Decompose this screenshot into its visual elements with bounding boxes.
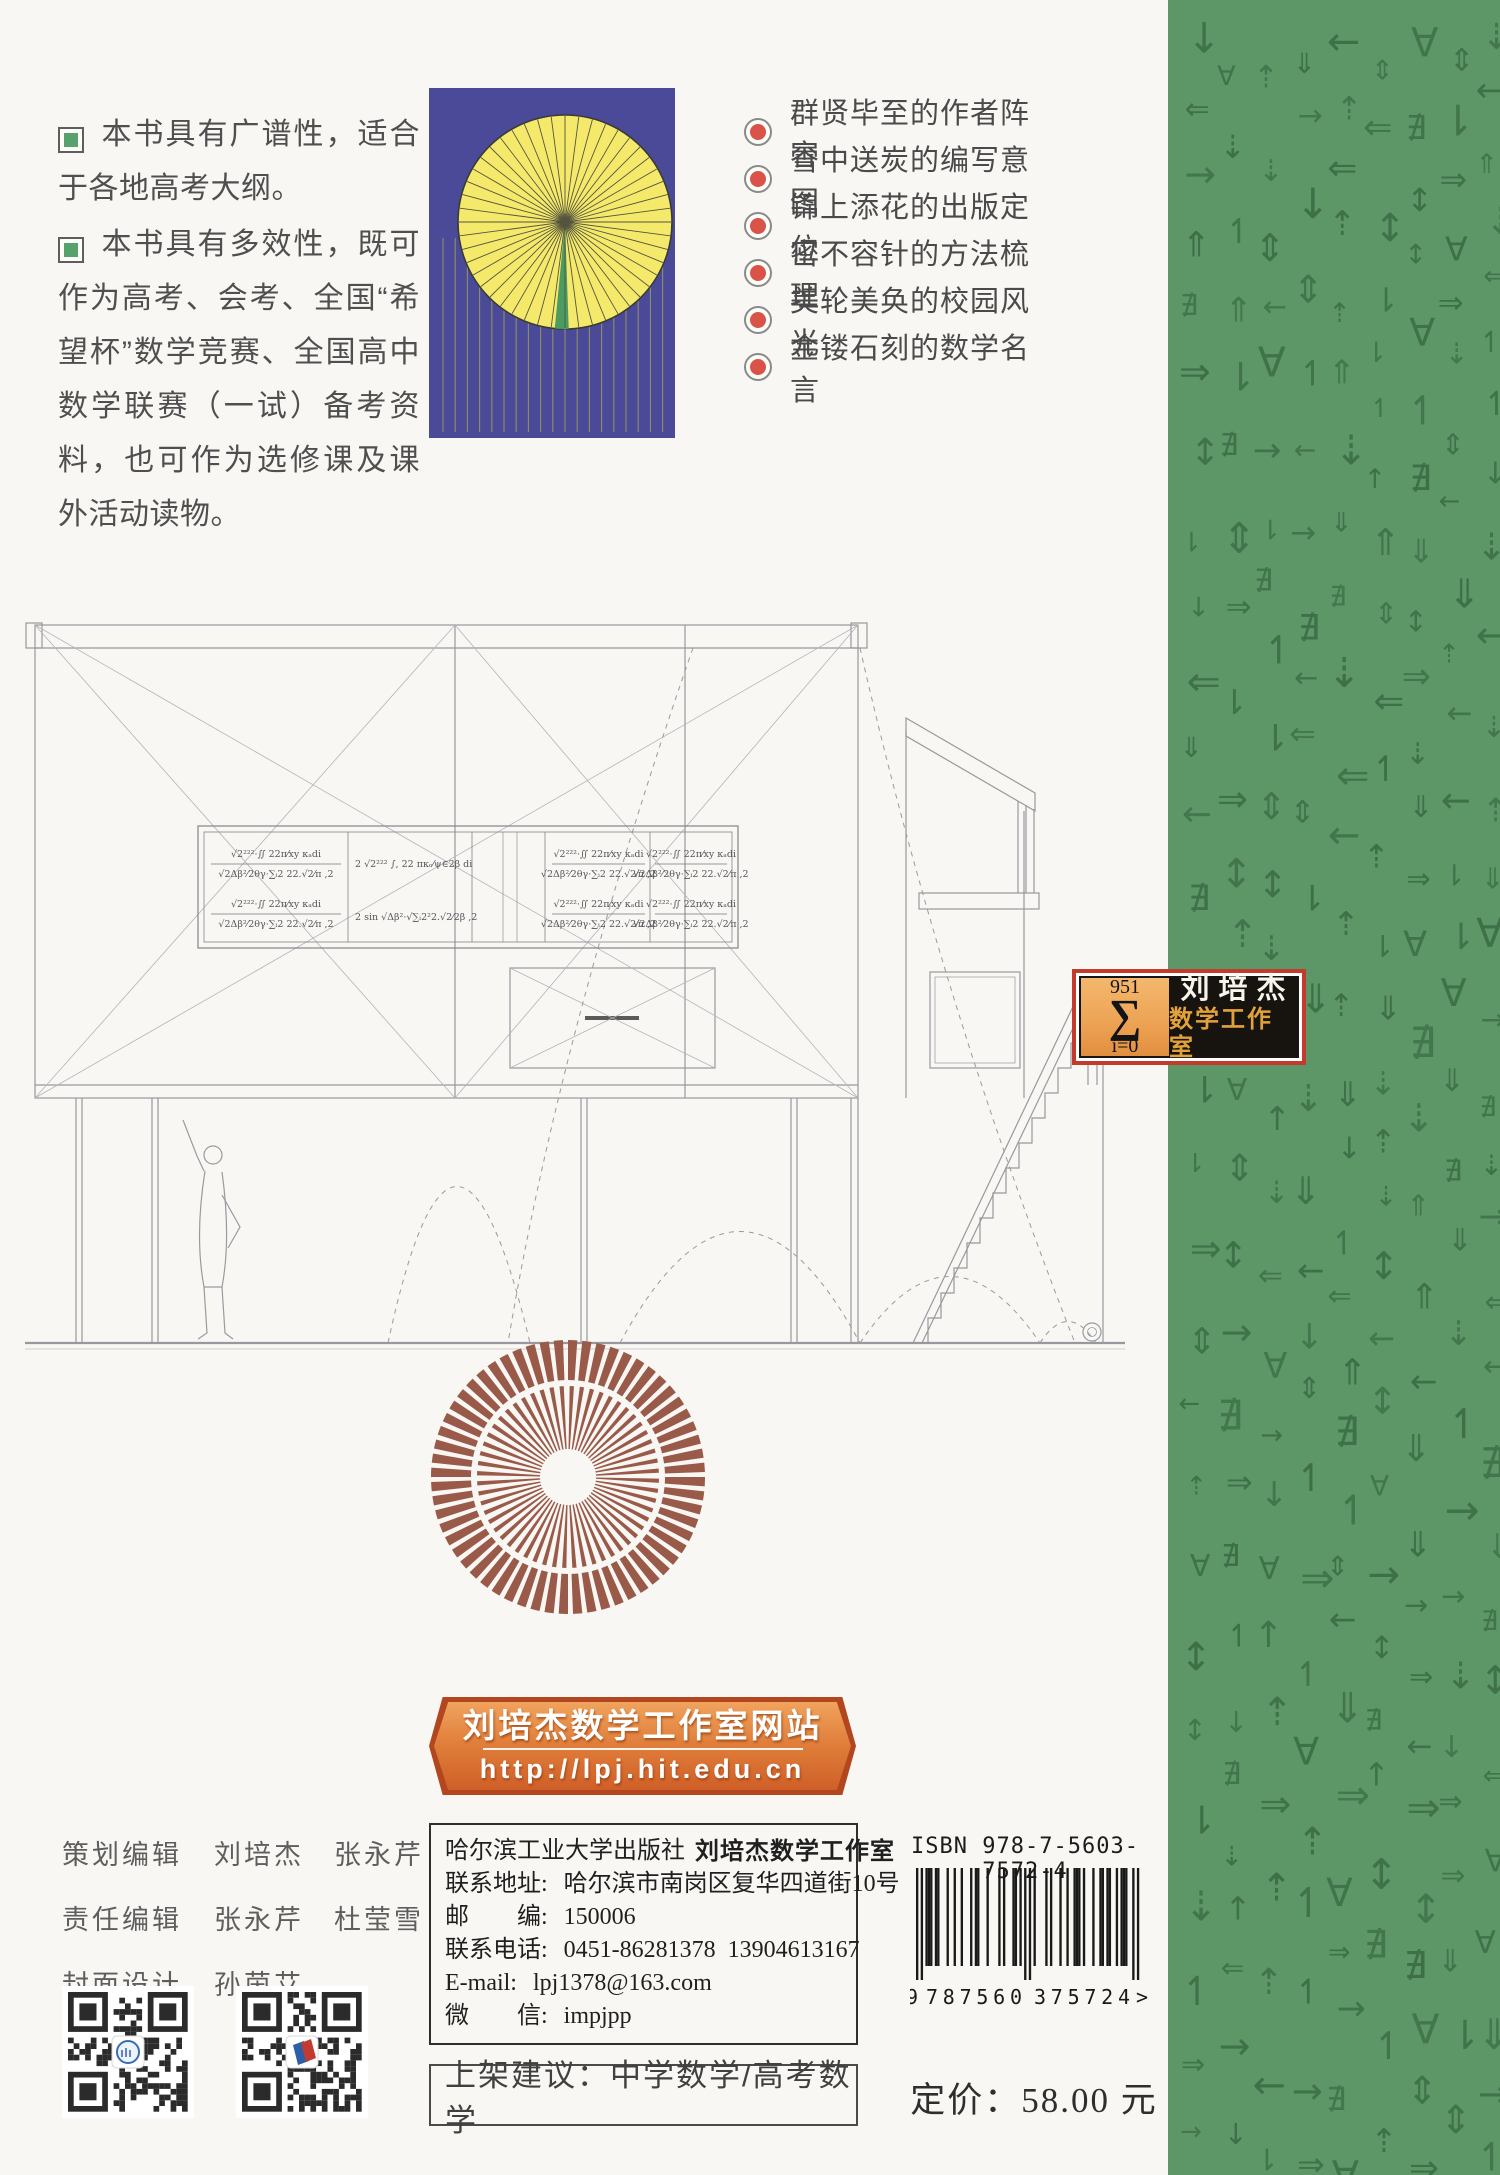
svg-text:↿: ↿ xyxy=(1295,1456,1327,1500)
svg-text:⇒: ⇒ xyxy=(1226,589,1252,625)
svg-text:⇂: ⇂ xyxy=(1186,1798,1218,1842)
svg-text:⇕: ⇕ xyxy=(1449,42,1475,78)
svg-text:→: → xyxy=(1478,2073,1500,2116)
contact-value: lpj1378@163.com xyxy=(533,1967,712,2000)
svg-text:⇓: ⇓ xyxy=(1374,988,1402,1027)
svg-text:∄: ∄ xyxy=(1409,459,1431,499)
svg-text:√2²²²·∬ 22π⁄xy κₐdi: √2²²²·∬ 22π⁄xy κₐdi xyxy=(646,849,736,860)
sigma-logo-icon: 951 ∑ i=0 xyxy=(1081,978,1169,1056)
svg-text:⇂: ⇂ xyxy=(1190,1071,1220,1112)
svg-text:↿: ↿ xyxy=(1446,1400,1480,1448)
contact-value: 0451-86281378 13904613167 xyxy=(564,1934,860,1967)
svg-text:⇣: ⇣ xyxy=(1184,1883,1218,1931)
svg-text:↓: ↓ xyxy=(1483,456,1500,491)
svg-text:∀: ∀ xyxy=(1485,1843,1500,1879)
svg-text:⇕: ⇕ xyxy=(1374,596,1398,630)
svg-text:↿: ↿ xyxy=(1371,750,1400,790)
svg-text:⇓: ⇓ xyxy=(1439,1063,1465,1099)
svg-text:√2Δβ²⁄2θγ·∑ᵢ2 22.√2⁄π ,2: √2Δβ²⁄2θγ·∑ᵢ2 22.√2⁄π ,2 xyxy=(633,919,748,930)
svg-text:↓: ↓ xyxy=(1187,593,1210,624)
svg-text:⇐: ⇐ xyxy=(1186,657,1220,705)
svg-text:⇣: ⇣ xyxy=(1220,1841,1243,1872)
svg-text:⇂: ⇂ xyxy=(1365,336,1388,369)
svg-text:⇣: ⇣ xyxy=(1445,1654,1476,1697)
svg-text:⇂: ⇂ xyxy=(1440,96,1475,145)
svg-text:⇑: ⇑ xyxy=(1406,1189,1430,1223)
banner-divider xyxy=(483,1748,803,1750)
contact-value: 哈尔滨市南岗区复华四道街10号 xyxy=(564,1868,900,1901)
credit-name: 刘培杰 xyxy=(214,1833,304,1872)
svg-text:√2²²²·∬ 22π⁄xy κₐdi: √2²²²·∬ 22π⁄xy κₐdi xyxy=(553,899,643,910)
svg-text:↿: ↿ xyxy=(1330,1223,1358,1262)
website-banner: 刘培杰数学工作室网站 http://lpj.hit.edu.cn xyxy=(429,1697,856,1795)
svg-text:√2²²²·∬ 22π⁄xy κₐdi: √2²²²·∬ 22π⁄xy κₐdi xyxy=(231,899,321,910)
svg-text:⇒: ⇒ xyxy=(1181,2047,1205,2081)
svg-text:↑: ↑ xyxy=(1224,1889,1251,1927)
svg-text:√2²²²·∬ 22π⁄xy κₐdi: √2²²²·∬ 22π⁄xy κₐdi xyxy=(553,849,643,860)
svg-text:↓: ↓ xyxy=(1439,1730,1464,1765)
feature-list: 群贤毕至的作者阵容雪中送炭的编写意图锦上添花的出版定位密不容针的方法梳理美轮美奂… xyxy=(744,116,1054,398)
svg-text:←: ← xyxy=(1368,1319,1395,1357)
intro-paragraph: 本书具有广谱性，适合于各地高考大纲。 xyxy=(58,108,420,216)
svg-text:∀: ∀ xyxy=(1332,2153,1360,2175)
svg-text:∄: ∄ xyxy=(1404,1944,1427,1987)
cover-artwork-fan xyxy=(429,88,675,438)
svg-text:⇣: ⇣ xyxy=(1258,154,1283,189)
svg-text:↓: ↓ xyxy=(1224,2117,1248,2151)
svg-text:⇓: ⇓ xyxy=(1476,2010,1500,2059)
contact-value: impjpp xyxy=(564,2000,632,2033)
svg-text:∀: ∀ xyxy=(1445,229,1468,268)
contact-label: 联系地址: xyxy=(445,1868,554,1901)
building-outline xyxy=(25,623,1125,1349)
svg-text:↕: ↕ xyxy=(1220,851,1254,897)
studio-subtitle: 数学工作室 xyxy=(1169,1006,1297,1062)
svg-text:⇂: ⇂ xyxy=(1260,718,1290,759)
svg-text:⇕: ⇕ xyxy=(1406,2069,1438,2113)
svg-text:∄: ∄ xyxy=(1219,428,1238,463)
svg-text:←: ← xyxy=(1252,2062,1286,2108)
book-back-cover: ↓⇐→⇑∄⇒↕⇂↓⇐⇓←∄↑⇂⇂⇒⇕←⇡∀↕↕⇂⇣↿⇒→∀⇣↿⇑⇂∄⇕⇒⇂⇒↕⇡… xyxy=(0,0,1500,2175)
svg-text:↿: ↿ xyxy=(1298,355,1327,395)
svg-text:√2Δβ²⁄2θγ·∑ᵢ2 22.√2⁄π ,2: √2Δβ²⁄2θγ·∑ᵢ2 22.√2⁄π ,2 xyxy=(218,869,333,880)
svg-text:⇓: ⇓ xyxy=(1437,1943,1463,1979)
svg-text:↓: ↓ xyxy=(1295,1318,1324,1358)
svg-text:⇐: ⇐ xyxy=(1327,1279,1351,1313)
annex-window xyxy=(930,972,1020,1068)
svg-text:↕: ↕ xyxy=(1180,1635,1213,1680)
svg-text:→: → xyxy=(1184,152,1216,196)
svg-text:⇂: ⇂ xyxy=(1224,355,1257,400)
svg-text:⇂: ⇂ xyxy=(1446,917,1476,958)
credit-row: 策划编辑刘培杰张永芹 xyxy=(62,1833,454,1872)
svg-text:←: ← xyxy=(1328,813,1361,858)
svg-text:→: → xyxy=(1292,2069,1323,2112)
svg-text:⇓: ⇓ xyxy=(1293,47,1316,80)
svg-text:⇡: ⇡ xyxy=(1328,204,1357,244)
svg-text:⇐: ⇐ xyxy=(1185,92,1210,127)
svg-text:↑: ↑ xyxy=(1364,464,1387,495)
svg-text:⇂: ⇂ xyxy=(1298,880,1327,920)
dashed-trajectories xyxy=(388,648,1096,1343)
svg-text:⇒: ⇒ xyxy=(1179,349,1211,393)
svg-text:←: ← xyxy=(1476,613,1500,656)
arrow-pattern: ↓⇐→⇑∄⇒↕⇂↓⇐⇓←∄↑⇂⇂⇒⇕←⇡∀↕↕⇂⇣↿⇒→∀⇣↿⇑⇂∄⇕⇒⇂⇒↕⇡… xyxy=(1168,0,1500,2175)
svg-text:↕: ↕ xyxy=(1404,604,1428,638)
svg-text:⇐: ⇐ xyxy=(1336,753,1370,799)
svg-text:∀: ∀ xyxy=(1476,911,1500,957)
svg-text:∀: ∀ xyxy=(1259,1551,1280,1587)
qr-code-right xyxy=(236,1986,368,2118)
publisher-info-box: 哈尔滨工业大学出版社 刘培杰数学工作室 联系地址: 哈尔滨市南岗区复华四道街10… xyxy=(429,1823,858,2045)
svg-text:⇒: ⇒ xyxy=(1217,777,1248,820)
svg-text:⇡: ⇡ xyxy=(1261,1866,1293,1910)
svg-text:⇑: ⇑ xyxy=(1475,149,1498,180)
svg-text:←: ← xyxy=(1410,1362,1438,1401)
svg-text:→: → xyxy=(1221,1310,1253,1354)
svg-text:↿: ↿ xyxy=(1225,212,1254,252)
svg-text:←: ← xyxy=(1294,660,1318,694)
svg-text:⇡: ⇡ xyxy=(1328,988,1354,1024)
svg-text:⇑: ⇑ xyxy=(1182,225,1211,265)
svg-text:∄: ∄ xyxy=(1188,879,1210,919)
svg-text:⇐: ⇐ xyxy=(1483,261,1500,292)
svg-text:∀: ∀ xyxy=(1411,2005,1439,2053)
svg-text:⇓: ⇓ xyxy=(1330,1684,1365,1733)
svg-text:→: → xyxy=(1290,515,1316,551)
svg-text:√2Δβ²⁄2θγ·∑ᵢ2 22.√2⁄π ,2: √2Δβ²⁄2θγ·∑ᵢ2 22.√2⁄π ,2 xyxy=(633,869,748,880)
credit-name: 杜莹雪 xyxy=(334,1898,424,1937)
svg-text:⇐: ⇐ xyxy=(1363,108,1392,148)
svg-text:⇡: ⇡ xyxy=(1328,298,1351,329)
svg-text:⇕: ⇕ xyxy=(1187,1321,1217,1362)
intro-text: 本书具有多效性，既可作为高考、会考、全国“希望杯”数学竞赛、全国高中数学联赛（一… xyxy=(58,228,420,531)
svg-text:⇡: ⇡ xyxy=(1253,59,1279,95)
svg-text:∄: ∄ xyxy=(1221,1539,1240,1574)
svg-text:↕: ↕ xyxy=(1257,863,1288,906)
svg-text:⇡: ⇡ xyxy=(1370,2121,1398,2160)
svg-text:⇐: ⇐ xyxy=(1221,1952,1244,1985)
svg-text:⇒: ⇒ xyxy=(1409,2148,1439,2175)
stair-steps xyxy=(928,1018,1097,1343)
svg-text:⇒: ⇒ xyxy=(1409,1660,1433,1694)
svg-text:←: ← xyxy=(1329,1599,1357,1638)
svg-text:⇡: ⇡ xyxy=(1185,1472,1207,1502)
svg-text:2 sin √Δβ²·√∑ᵢ2²2.√2⁄2β ,2: 2 sin √Δβ²·√∑ᵢ2²2.√2⁄2β ,2 xyxy=(355,912,477,923)
svg-text:←: ← xyxy=(1294,435,1317,466)
banner-url: http://lpj.hit.edu.cn xyxy=(480,1755,805,1783)
svg-text:⇡: ⇡ xyxy=(1370,1122,1397,1160)
svg-text:⇕: ⇕ xyxy=(1256,785,1287,828)
svg-text:∄: ∄ xyxy=(1444,1154,1462,1188)
svg-text:↕: ↕ xyxy=(1479,1659,1500,1704)
svg-text:↿: ↿ xyxy=(1479,325,1500,359)
svg-text:↕: ↕ xyxy=(1190,431,1221,474)
qr-code-left xyxy=(62,1986,194,2118)
svg-text:←: ← xyxy=(1438,487,1460,517)
ean13-barcode: 9787560375724> xyxy=(910,1864,1150,2014)
svg-text:√2Δβ²⁄2θγ·∑ᵢ2 22.√2⁄π ,2: √2Δβ²⁄2θγ·∑ᵢ2 22.√2⁄π ,2 xyxy=(218,919,333,930)
svg-text:⇒: ⇒ xyxy=(1438,1784,1462,1818)
svg-text:>: > xyxy=(1136,1985,1148,2009)
svg-text:↓: ↓ xyxy=(1260,1475,1289,1515)
svg-text:∀: ∀ xyxy=(1190,1549,1211,1584)
svg-text:∀: ∀ xyxy=(1293,1730,1319,1774)
publisher-name: 哈尔滨工业大学出版社 xyxy=(445,1835,685,1868)
svg-text:⇓: ⇓ xyxy=(1290,1169,1322,1213)
svg-text:↑: ↑ xyxy=(1253,1615,1283,1656)
studio-name: 刘培杰 xyxy=(1171,972,1294,1006)
svg-text:⇕: ⇕ xyxy=(1297,1371,1321,1405)
sigma-symbol: ∑ xyxy=(1109,996,1142,1036)
svg-text:→: → xyxy=(1219,2024,1251,2068)
svg-text:⇣: ⇣ xyxy=(1444,1314,1473,1354)
svg-text:⇓: ⇓ xyxy=(1486,1527,1500,1567)
publisher-contact-row: 微 信: impjpp xyxy=(445,2000,842,2033)
svg-text:⇐: ⇐ xyxy=(1289,714,1316,752)
svg-text:↿: ↿ xyxy=(1336,1486,1370,1534)
svg-text:375724: 375724 xyxy=(1034,1985,1130,2009)
credit-role: 策划编辑 xyxy=(62,1833,182,1872)
publisher-name-row: 哈尔滨工业大学出版社 刘培杰数学工作室 xyxy=(445,1835,842,1868)
svg-text:↕: ↕ xyxy=(1364,1850,1399,1899)
svg-text:⇓: ⇓ xyxy=(1408,790,1433,825)
svg-text:⇂: ⇂ xyxy=(1254,2144,1279,2175)
svg-text:←: ← xyxy=(1297,1251,1325,1290)
svg-text:↓: ↓ xyxy=(1295,179,1330,228)
svg-text:9: 9 xyxy=(910,1985,918,2009)
svg-text:⇕: ⇕ xyxy=(1292,267,1324,311)
svg-text:⇣: ⇣ xyxy=(1485,200,1500,244)
svg-text:∄: ∄ xyxy=(1217,1392,1243,1440)
shelving-text: 上架建议：中学数学/高考数学 xyxy=(445,2050,856,2140)
svg-text:←: ← xyxy=(1263,289,1287,323)
svg-text:←: ← xyxy=(1446,695,1472,731)
svg-text:⇒: ⇒ xyxy=(1440,1858,1465,1893)
svg-text:∄: ∄ xyxy=(1481,1606,1498,1637)
svg-text:⇣: ⇣ xyxy=(1482,710,1500,744)
svg-text:↕: ↕ xyxy=(1369,1630,1395,1666)
svg-text:∀: ∀ xyxy=(1258,339,1286,387)
yellow-fan-illustration xyxy=(429,88,675,438)
publisher-contact-row: 邮 编: 150006 xyxy=(445,1901,842,1934)
contact-label: 联系电话: xyxy=(445,1934,554,1967)
svg-text:↿: ↿ xyxy=(1369,394,1391,424)
green-square-bullet-icon xyxy=(58,237,84,263)
publisher-contact-row: 联系地址: 哈尔滨市南岗区复华四道街10号 xyxy=(445,1868,842,1901)
svg-text:⇣: ⇣ xyxy=(1403,1097,1436,1142)
svg-text:⇒: ⇒ xyxy=(1259,1782,1291,1826)
svg-text:⇕: ⇕ xyxy=(1222,514,1257,563)
green-pattern-strip: ↓⇐→⇑∄⇒↕⇂↓⇐⇓←∄↑⇂⇂⇒⇕←⇡∀↕↕⇂⇣↿⇒→∀⇣↿⇑⇂∄⇕⇒⇂⇒↕⇡… xyxy=(1168,0,1500,2175)
svg-text:∄: ∄ xyxy=(1180,288,1198,322)
svg-text:∄: ∄ xyxy=(1409,1018,1436,1067)
credit-name: 张永芹 xyxy=(334,1833,424,1872)
svg-text:∀: ∀ xyxy=(1403,925,1427,965)
brown-radial-fan xyxy=(430,1339,706,1615)
green-square-bullet-icon xyxy=(58,127,84,153)
svg-text:←: ← xyxy=(1483,1349,1500,1383)
svg-text:∄: ∄ xyxy=(1479,1092,1496,1123)
credit-role: 责任编辑 xyxy=(62,1898,182,1937)
svg-text:⇒: ⇒ xyxy=(1407,861,1431,895)
svg-text:⇣: ⇣ xyxy=(1370,1065,1397,1103)
svg-text:2 √2²²² ∫, 22 πκₒ⁄ψ∈2β di: 2 √2²²² ∫, 22 πκₒ⁄ψ∈2β di xyxy=(355,859,472,870)
svg-text:⇣: ⇣ xyxy=(1476,526,1500,569)
red-bullet-icon xyxy=(744,259,772,287)
svg-text:⇡: ⇡ xyxy=(1438,639,1460,669)
svg-text:⇑: ⇑ xyxy=(1410,1277,1439,1317)
credit-name: 张永芹 xyxy=(214,1898,304,1937)
svg-text:⇕: ⇕ xyxy=(1326,1552,1349,1583)
svg-text:⇂: ⇂ xyxy=(1184,1149,1206,1179)
publisher-contact-row: 联系电话: 0451-86281378 13904613167 xyxy=(445,1934,842,1967)
svg-text:∄: ∄ xyxy=(1222,1757,1241,1792)
svg-text:∄: ∄ xyxy=(1254,563,1273,598)
intro-text-block: 本书具有广谱性，适合于各地高考大纲。 本书具有多效性，既可作为高考、会考、全国“… xyxy=(58,108,420,544)
svg-text:⇐: ⇐ xyxy=(1373,679,1404,722)
svg-text:↿: ↿ xyxy=(1180,1969,1214,2015)
modulor-figure xyxy=(183,1120,240,1339)
svg-text:⇣: ⇣ xyxy=(1480,1149,1500,1182)
svg-text:⇣: ⇣ xyxy=(1444,337,1468,371)
sigma-lower-bound: i=0 xyxy=(1112,1036,1139,1056)
svg-text:→: → xyxy=(1481,1003,1500,1038)
svg-text:→: → xyxy=(1441,1579,1465,1613)
svg-text:⇒: ⇒ xyxy=(1328,1937,1351,1968)
svg-text:⇓: ⇓ xyxy=(1448,571,1482,617)
svg-text:∄: ∄ xyxy=(1479,1439,1500,1487)
svg-text:→: → xyxy=(1180,2117,1202,2147)
svg-text:⇣: ⇣ xyxy=(1264,1175,1290,1211)
ball xyxy=(1083,1323,1101,1341)
svg-text:⇓: ⇓ xyxy=(1447,1223,1473,1259)
svg-text:⇂: ⇂ xyxy=(1220,683,1249,723)
svg-text:→: → xyxy=(1404,1588,1428,1622)
formula-texts: √2²²²·∬ 22π⁄xy κₐdi√2Δβ²⁄2θγ·∑ᵢ2 22.√2⁄π… xyxy=(211,849,749,930)
svg-text:⇣: ⇣ xyxy=(1219,128,1246,166)
svg-text:∄: ∄ xyxy=(1364,1923,1388,1967)
svg-text:∀: ∀ xyxy=(1326,1871,1353,1916)
intro-text: 本书具有广谱性，适合于各地高考大纲。 xyxy=(58,118,420,205)
svg-text:⇒: ⇒ xyxy=(1297,2144,1325,2175)
svg-text:⇑: ⇑ xyxy=(1328,353,1356,392)
svg-text:↕: ↕ xyxy=(1374,206,1407,251)
svg-text:⇣: ⇣ xyxy=(1293,1077,1324,1120)
shelving-suggestion-box: 上架建议：中学数学/高考数学 xyxy=(429,2064,858,2126)
svg-text:↿: ↿ xyxy=(1483,384,1500,423)
svg-text:⇓: ⇓ xyxy=(1480,861,1500,895)
publisher-contact-row: E-mail: lpj1378@163.com xyxy=(445,1967,842,2000)
intro-paragraph: 本书具有多效性，既可作为高考、会考、全国“希望杯”数学竞赛、全国高中数学联赛（一… xyxy=(58,218,420,542)
red-bullet-icon xyxy=(744,118,772,146)
feature-item: 金镂石刻的数学名言 xyxy=(744,351,1054,383)
svg-text:↿: ↿ xyxy=(1406,388,1440,434)
svg-text:→: → xyxy=(1444,1486,1479,1535)
svg-text:⇂: ⇂ xyxy=(1180,528,1203,559)
svg-text:↿: ↿ xyxy=(1262,629,1295,674)
svg-text:⇑: ⇑ xyxy=(1370,521,1401,564)
svg-text:↿: ↿ xyxy=(1294,1972,1323,2012)
studio-badge: 951 ∑ i=0 刘培杰 数学工作室 xyxy=(1072,969,1306,1065)
svg-text:∀: ∀ xyxy=(1475,1925,1496,1961)
svg-text:∀: ∀ xyxy=(1409,310,1435,354)
pilotis-columns xyxy=(76,1098,858,1343)
svg-text:←: ← xyxy=(1476,70,1500,110)
contact-label: 邮 编: xyxy=(445,1901,554,1934)
svg-text:↿: ↿ xyxy=(1373,2024,1405,2068)
svg-text:⇡: ⇡ xyxy=(1254,1962,1284,2003)
svg-text:↕: ↕ xyxy=(1406,181,1433,219)
svg-text:⇣: ⇣ xyxy=(1257,929,1286,969)
svg-text:⇐: ⇐ xyxy=(1483,1760,1500,1791)
svg-text:∀: ∀ xyxy=(1263,1346,1287,1386)
svg-text:⇒: ⇒ xyxy=(1190,1226,1222,1270)
svg-text:⇐: ⇐ xyxy=(1327,148,1357,189)
svg-text:∀: ∀ xyxy=(1370,1469,1389,1502)
awning-roof xyxy=(906,718,1035,811)
svg-text:↑: ↑ xyxy=(1263,1099,1291,1138)
banner-title: 刘培杰数学工作室网站 xyxy=(463,1709,823,1743)
contact-value: 150006 xyxy=(564,1901,636,1934)
red-bullet-icon xyxy=(744,353,772,381)
svg-text:↿: ↿ xyxy=(1226,1618,1252,1654)
svg-text:∄: ∄ xyxy=(1406,108,1427,147)
svg-text:⇕: ⇕ xyxy=(1224,1146,1255,1189)
annex-wall xyxy=(906,730,1024,1098)
svg-text:←: ← xyxy=(1182,794,1212,835)
red-bullet-icon xyxy=(744,212,772,240)
svg-text:→: → xyxy=(1479,1197,1500,1237)
svg-text:↕: ↕ xyxy=(1404,240,1427,271)
svg-text:⇂: ⇂ xyxy=(1259,516,1282,547)
svg-text:⇣: ⇣ xyxy=(1375,1182,1398,1213)
svg-text:⇡: ⇡ xyxy=(1363,838,1390,876)
svg-text:⇒: ⇒ xyxy=(1402,657,1431,697)
credit-row: 责任编辑张永芹杜莹雪 xyxy=(62,1898,454,1937)
svg-text:⇕: ⇕ xyxy=(1440,2098,1473,2143)
svg-text:↿: ↿ xyxy=(1294,1655,1323,1695)
svg-text:⇕: ⇕ xyxy=(1290,794,1316,830)
svg-text:←: ← xyxy=(1178,1389,1200,1419)
svg-text:⇑: ⇑ xyxy=(1337,1352,1367,1393)
svg-text:↓: ↓ xyxy=(1186,13,1221,62)
svg-text:⇐: ⇐ xyxy=(1258,1258,1283,1293)
svg-text:↓: ↓ xyxy=(1337,1132,1362,1167)
svg-text:↕: ↕ xyxy=(1218,1235,1248,1276)
svg-text:⇣: ⇣ xyxy=(1405,737,1430,772)
svg-text:↿: ↿ xyxy=(1475,2135,1500,2175)
svg-text:⇡: ⇡ xyxy=(1332,904,1360,943)
svg-text:⇕: ⇕ xyxy=(1371,55,1394,86)
svg-text:→: → xyxy=(1253,430,1282,470)
svg-text:⇐: ⇐ xyxy=(1484,1285,1500,1320)
svg-text:⇓: ⇓ xyxy=(1401,1427,1432,1470)
svg-text:⇂: ⇂ xyxy=(1372,281,1400,320)
svg-text:⇓: ⇓ xyxy=(1330,508,1353,539)
svg-text:∀: ∀ xyxy=(1411,20,1439,66)
svg-text:∀: ∀ xyxy=(1227,1073,1248,1108)
svg-text:787560: 787560 xyxy=(926,1985,1022,2009)
svg-text:↕: ↕ xyxy=(1183,1713,1207,1747)
svg-text:↕: ↕ xyxy=(1409,1887,1443,1933)
svg-text:↿: ↿ xyxy=(1291,1879,1325,1927)
svg-text:√2²²²·∬ 22π⁄xy κₐdi: √2²²²·∬ 22π⁄xy κₐdi xyxy=(231,849,321,860)
svg-text:⇒: ⇒ xyxy=(1439,159,1467,198)
svg-text:⇣: ⇣ xyxy=(1327,649,1361,697)
svg-text:∀: ∀ xyxy=(1441,971,1467,1015)
svg-text:⇡: ⇡ xyxy=(1482,790,1500,829)
